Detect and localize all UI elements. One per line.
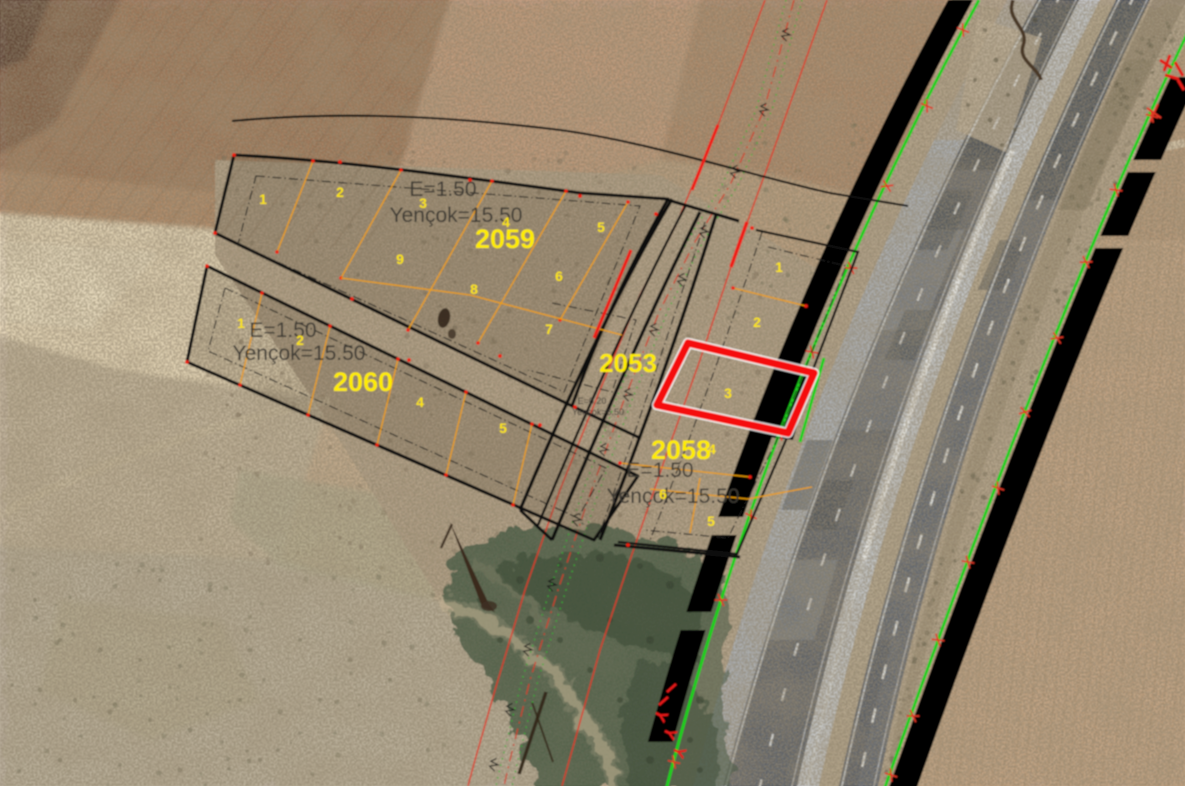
svg-text:7: 7 [545,321,553,337]
svg-text:8: 8 [470,281,478,297]
svg-text:4: 4 [502,214,510,230]
svg-text:Yençok=6.50: Yençok=6.50 [572,407,624,417]
svg-text:6: 6 [555,268,563,284]
svg-text:E=1.50: E=1.50 [626,459,693,482]
svg-text:4: 4 [416,394,424,410]
svg-text:6: 6 [659,486,667,502]
svg-text:E=0.20: E=0.20 [578,396,607,406]
svg-text:4: 4 [708,441,716,457]
svg-text:5: 5 [597,219,605,235]
svg-text:2053: 2053 [599,348,657,378]
svg-text:5: 5 [499,420,507,436]
svg-text:1: 1 [259,191,267,207]
svg-text:2: 2 [336,184,344,200]
svg-text:2060: 2060 [333,367,393,397]
svg-text:9: 9 [396,251,404,267]
svg-text:Yençok=15.50: Yençok=15.50 [607,485,740,508]
svg-text:5: 5 [707,513,715,529]
svg-text:1: 1 [775,259,783,275]
svg-text:E=1.50: E=1.50 [249,319,316,342]
svg-text:2: 2 [753,314,761,330]
svg-text:3: 3 [724,385,732,401]
svg-text:2: 2 [296,332,304,348]
svg-text:3: 3 [419,195,427,211]
svg-text:1: 1 [237,315,245,331]
